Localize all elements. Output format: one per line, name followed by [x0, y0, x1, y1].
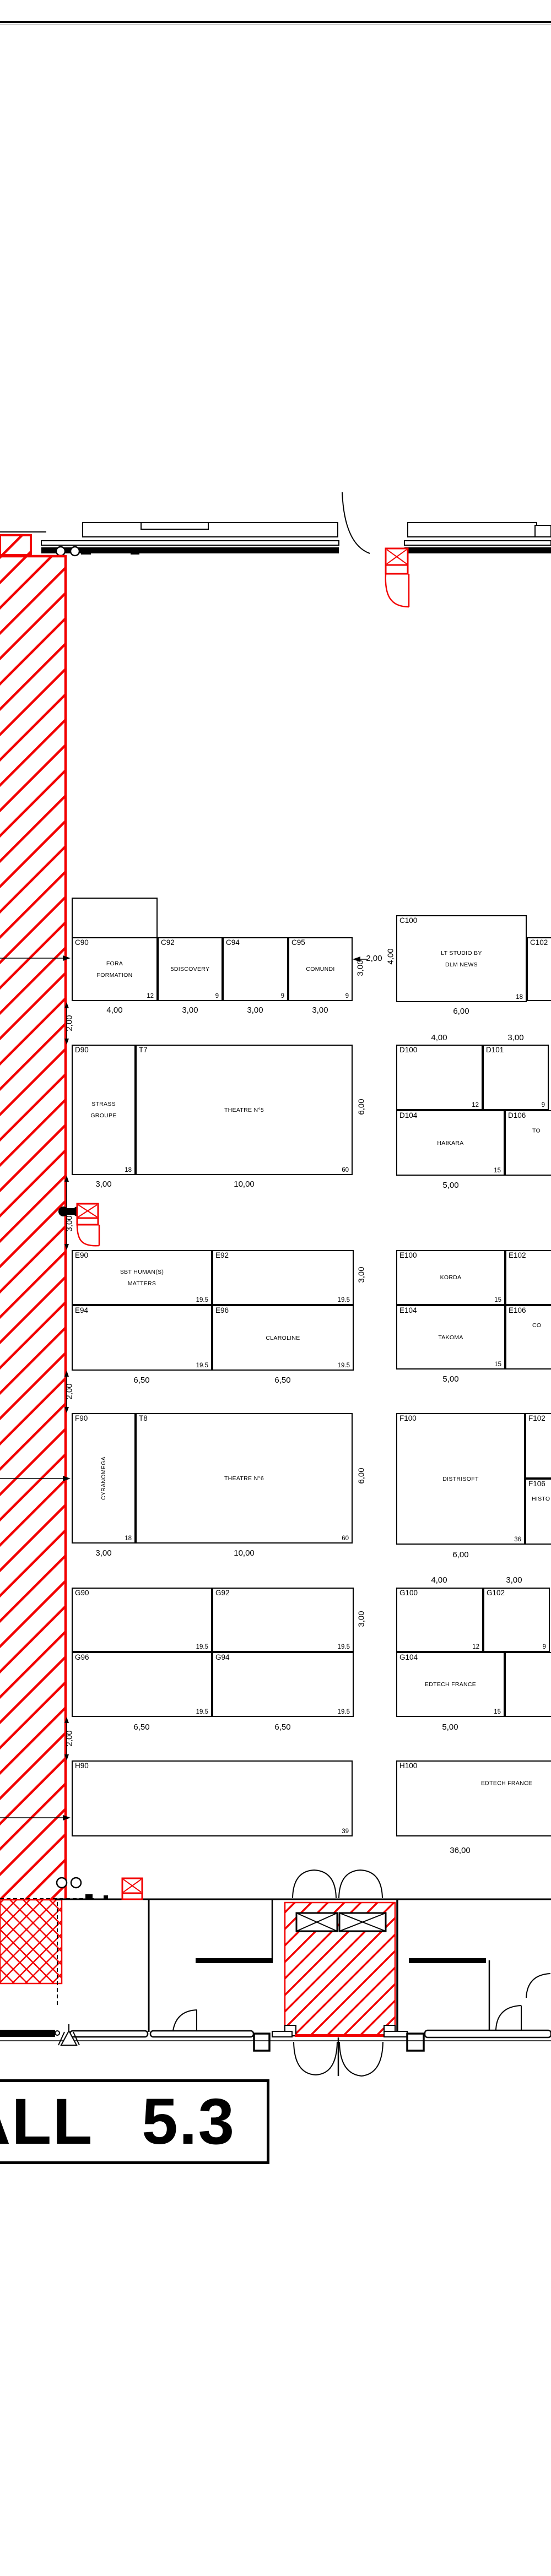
floor-plan: HALL 5.3 C90FORAFORMATION12C925DISCOVERY… [0, 0, 551, 2576]
booth-area-sqm: 9 [345, 993, 349, 999]
booth-area-sqm: 12 [472, 1102, 479, 1108]
booth-F102: F102 [525, 1413, 551, 1479]
booth-G92: G9219.5 [212, 1588, 354, 1652]
booth-C100: C100LT STUDIO BYDLM NEWS18 [396, 915, 527, 1002]
booth-code: E92 [215, 1251, 229, 1259]
column-icon [57, 1878, 67, 1888]
booth-tenant-name: DISTRISOFT [397, 1414, 524, 1544]
dimension-label-vertical: 3,00 [65, 1215, 74, 1231]
booth-tenant-name: 5DISCOVERY [159, 938, 222, 1000]
booth-tenant-name: EDTECH FRANCE [397, 1653, 504, 1716]
booth-D90: D90STRASSGROUPE18 [72, 1045, 136, 1175]
booth-code: E106 [509, 1306, 526, 1314]
booth-area-sqm: 9 [281, 993, 284, 999]
booth-E102: E102 [505, 1250, 551, 1305]
booth-code: E102 [509, 1251, 526, 1259]
booth-D104: D104HAIKARA15 [396, 1110, 505, 1176]
booth-area-sqm: 12 [472, 1644, 479, 1650]
dimension-label-vertical: 6,00 [357, 1468, 366, 1483]
dimension-label-vertical: 3,00 [356, 960, 365, 976]
door-swing-icon [496, 2006, 521, 2030]
booth-area-sqm: 19.5 [196, 1644, 208, 1650]
column-icon [56, 547, 65, 556]
booth-tenant-name: SBT HUMAN(S)MATTERS [73, 1251, 211, 1304]
dimension-label: 3,00 [95, 1548, 111, 1558]
booth-code: F106 [528, 1480, 545, 1488]
center-hatched-zone [285, 1903, 395, 2037]
booth-area-sqm: 15 [494, 1361, 501, 1368]
booth-code: G90 [75, 1589, 89, 1597]
booth-code: G100 [399, 1589, 418, 1597]
dimension-label-vertical: 2,00 [65, 1015, 74, 1031]
dimension-label: 6,00 [453, 1007, 469, 1016]
booth-code: C102 [530, 938, 548, 947]
booth-G104: G104EDTECH FRANCE15 [396, 1652, 505, 1717]
booth-D100: D10012 [396, 1045, 483, 1110]
dimension-label: 2,00 [366, 954, 382, 963]
booth-E104: E104TAKOMA15 [396, 1305, 505, 1369]
door-swing-icon [526, 1974, 550, 1998]
dimension-label: 5,00 [442, 1722, 458, 1732]
booth-G96: G9619.5 [72, 1652, 212, 1717]
booth-code: G94 [215, 1653, 230, 1661]
booth-tenant-name: THEATRE N°5 [137, 1046, 352, 1174]
booth-code: D106 [508, 1111, 526, 1119]
dimension-label-vertical: 3,00 [357, 1611, 366, 1627]
booth-area-sqm: 9 [542, 1102, 545, 1108]
dimension-label: 6,00 [452, 1550, 468, 1559]
booth-area-sqm: 18 [125, 1535, 132, 1542]
booth-area-sqm: 9 [215, 993, 219, 999]
booth-T8: T8THEATRE N°660 [136, 1413, 353, 1544]
booth-code: G102 [487, 1589, 505, 1597]
dimension-label-vertical: 2,00 [65, 1383, 74, 1399]
booth-code: D101 [486, 1046, 504, 1054]
hall-title: HALL 5.3 [0, 2079, 269, 2164]
column-icon [71, 1878, 81, 1888]
left-crosshatched-zone [0, 1899, 94, 2006]
dimension-label: 3,00 [182, 1006, 198, 1015]
booth-F106: F106HISTO [525, 1479, 551, 1545]
dimension-label: 10,00 [234, 1180, 255, 1189]
booth-area-sqm: 15 [494, 1709, 501, 1715]
booth-unlabeled [72, 898, 158, 938]
dimension-label: 3,00 [312, 1006, 328, 1015]
booth-tenant-name: HAIKARA [397, 1111, 504, 1175]
booth-area-sqm: 36 [514, 1536, 521, 1543]
door-swing-icon [293, 1870, 382, 1898]
booth-E94: E9419.5 [72, 1305, 212, 1371]
column-icon [58, 1207, 68, 1216]
fire-extinguisher-icon [386, 548, 409, 607]
booth-code: H90 [75, 1762, 89, 1770]
booth-area-sqm: 60 [342, 1535, 349, 1542]
booth-E100: E100KORDA15 [396, 1250, 505, 1305]
booth-tenant-name: KORDA [397, 1251, 504, 1304]
booth-area-sqm: 15 [494, 1297, 501, 1303]
booth-tenant-name: STRASSGROUPE [73, 1046, 134, 1174]
dimension-label-vertical: 3,00 [357, 1267, 366, 1282]
booth-code: D100 [399, 1046, 417, 1054]
booth-H90: H9039 [72, 1760, 353, 1836]
booth-code: H100 [399, 1762, 417, 1770]
dimension-label: 4,00 [431, 1033, 447, 1042]
booth-code: F102 [528, 1414, 545, 1422]
booth-tenant-name: LT STUDIO BYDLM NEWS [397, 916, 526, 1001]
booth-G90: G9019.5 [72, 1588, 212, 1652]
booth-tenant-name: COMUNDI [289, 938, 352, 1000]
dimension-label: 3,00 [507, 1033, 523, 1042]
dimension-label: 4,00 [431, 1575, 447, 1585]
booth-tenant-name: HISTO [532, 1496, 550, 1528]
booth-T7: T7THEATRE N°560 [136, 1045, 353, 1175]
booth-H100: H100EDTECH FRANCE [396, 1760, 551, 1836]
dimension-label: 6,50 [133, 1722, 149, 1732]
booth-area-sqm: 18 [125, 1167, 132, 1173]
booth-area-sqm: 19.5 [196, 1709, 208, 1715]
booth-E90: E90SBT HUMAN(S)MATTERS19.5 [72, 1250, 212, 1305]
booth-code: E94 [75, 1306, 88, 1314]
dimension-label: 6,50 [133, 1376, 149, 1385]
dimension-label: 10,00 [234, 1548, 255, 1558]
booth-C95: C95COMUNDI9 [288, 937, 353, 1001]
booth-tenant-name: EDTECH FRANCE [481, 1780, 532, 1817]
booth-area-sqm: 18 [516, 994, 523, 1001]
dimension-label-vertical: 6,00 [357, 1099, 366, 1115]
booth-area-sqm: 15 [494, 1167, 501, 1174]
dimension-label: 5,00 [442, 1374, 458, 1384]
booth-code: G96 [75, 1653, 89, 1661]
booth-G94: G9419.5 [212, 1652, 354, 1717]
dimension-label: 5,00 [442, 1181, 458, 1190]
dimension-label: 3,00 [95, 1180, 111, 1189]
booth-E96: E96CLAROLINE19.5 [212, 1305, 354, 1371]
dimension-label: 3,00 [506, 1575, 522, 1585]
booth-unlabeled [505, 1652, 551, 1717]
booth-tenant-name: THEATRE N°6 [137, 1414, 352, 1542]
top-wall [41, 492, 551, 556]
door-swing-icon [342, 492, 370, 553]
booth-area-sqm: 9 [543, 1644, 546, 1650]
dimension-label: 6,50 [274, 1376, 290, 1385]
dimension-label: 36,00 [450, 1846, 471, 1855]
booth-area-sqm: 19.5 [196, 1297, 208, 1303]
dimension-label: 3,00 [247, 1006, 263, 1015]
booth-D101: D1019 [483, 1045, 549, 1110]
dimension-label: 4,00 [106, 1006, 122, 1015]
booth-C90: C90FORAFORMATION12 [72, 937, 158, 1001]
booth-C92: C925DISCOVERY9 [158, 937, 223, 1001]
booth-C102: C102 [527, 937, 551, 1001]
dimension-label-vertical: 4,00 [386, 948, 396, 964]
booth-tenant-name: CYRANOMEGA [73, 1414, 134, 1542]
booth-area-sqm: 60 [342, 1167, 349, 1173]
booth-area-sqm: 19.5 [338, 1362, 350, 1369]
booth-area-sqm: 19.5 [338, 1709, 350, 1715]
fire-extinguisher-icon [122, 1878, 142, 1899]
booth-E92: E9219.5 [212, 1250, 354, 1305]
booth-tenant-name: CO [532, 1322, 541, 1353]
dimension-label: 6,50 [274, 1722, 290, 1732]
booth-area-sqm: 19.5 [338, 1644, 350, 1650]
page-top-border [0, 22, 551, 25]
dimension-label-vertical: 2,00 [65, 1730, 74, 1746]
booth-area-sqm: 12 [147, 993, 154, 999]
booth-F90: F90CYRANOMEGA18 [72, 1413, 136, 1544]
booth-E106: E106CO [505, 1305, 551, 1369]
fire-extinguisher-icon [77, 1204, 99, 1246]
bottom-wall [0, 1870, 551, 2076]
booth-area-sqm: 19.5 [338, 1297, 350, 1303]
booth-code: G92 [215, 1589, 230, 1597]
booth-C94: C949 [223, 937, 288, 1001]
booth-D106: D106TO [505, 1110, 551, 1176]
booth-area-sqm: 19.5 [196, 1362, 208, 1369]
booth-tenant-name: TO [532, 1127, 541, 1159]
door-swing-icon [294, 2037, 383, 2076]
booth-area-sqm: 39 [342, 1828, 349, 1835]
left-hatched-zone [0, 532, 66, 1900]
booth-F100: F100DISTRISOFT36 [396, 1413, 525, 1545]
booth-tenant-name: TAKOMA [397, 1306, 504, 1368]
booth-G100: G10012 [396, 1588, 483, 1652]
booth-G102: G1029 [483, 1588, 550, 1652]
booth-tenant-name: FORAFORMATION [73, 938, 156, 1000]
column-icon [71, 547, 79, 556]
booth-code: C94 [226, 938, 240, 947]
booth-tenant-name: CLAROLINE [213, 1306, 353, 1369]
